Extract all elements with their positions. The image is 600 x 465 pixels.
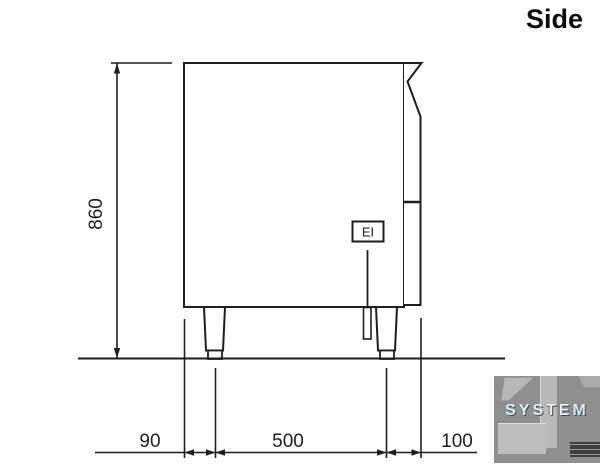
arrow-left-icon bbox=[216, 449, 226, 455]
leg-spacing-dimension-label: 500 bbox=[272, 431, 304, 452]
watermark-fineprint-block bbox=[570, 442, 600, 457]
brand-watermark: SYSTEM bbox=[494, 376, 600, 463]
arrow-down-icon bbox=[114, 348, 120, 358]
cabinet-body-outline bbox=[184, 63, 404, 307]
ei-inlet-pipe bbox=[364, 308, 372, 340]
arrow-right-icon bbox=[412, 449, 422, 455]
arrow-left-icon bbox=[185, 449, 195, 455]
arrow-right-icon bbox=[206, 449, 216, 455]
right-leg bbox=[376, 307, 397, 351]
arrow-up-icon bbox=[114, 64, 120, 74]
front-offset-dimension-label: 90 bbox=[139, 431, 160, 452]
arrow-right-icon bbox=[377, 449, 387, 455]
rear-offset-dimension-label: 100 bbox=[441, 431, 473, 452]
technical-drawing-page: Side EI 860 bbox=[0, 0, 600, 465]
ei-label: EI bbox=[362, 225, 374, 240]
arrow-left-icon bbox=[387, 449, 397, 455]
watermark-brand-text: SYSTEM bbox=[494, 402, 600, 420]
height-dimension-label: 860 bbox=[86, 198, 107, 230]
left-leg bbox=[204, 307, 225, 351]
rear-panel-profile bbox=[404, 63, 422, 305]
watermark-base-block bbox=[498, 423, 546, 454]
